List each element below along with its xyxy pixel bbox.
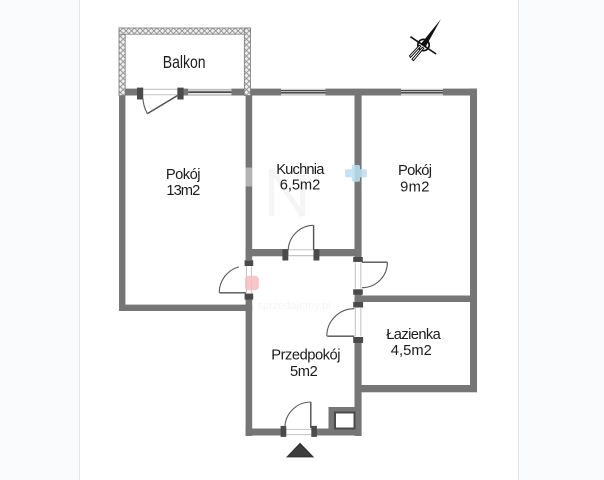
svg-text:sprzedajemy.pl: sprzedajemy.pl (257, 300, 330, 312)
svg-text:Łazienka: Łazienka (386, 327, 441, 343)
svg-text:6,5m2: 6,5m2 (280, 177, 321, 193)
svg-text:Przedpokój: Przedpokój (271, 348, 340, 364)
svg-text:Pokój: Pokój (398, 163, 432, 179)
svg-text:13m2: 13m2 (166, 183, 200, 199)
svg-text:Pokój: Pokój (166, 167, 201, 183)
svg-text:5m2: 5m2 (290, 364, 318, 380)
svg-text:4,5m2: 4,5m2 (391, 343, 432, 359)
svg-text:9m2: 9m2 (400, 180, 429, 196)
svg-text:Kuchnia: Kuchnia (276, 162, 325, 178)
svg-text:Balkon: Balkon (163, 52, 206, 72)
